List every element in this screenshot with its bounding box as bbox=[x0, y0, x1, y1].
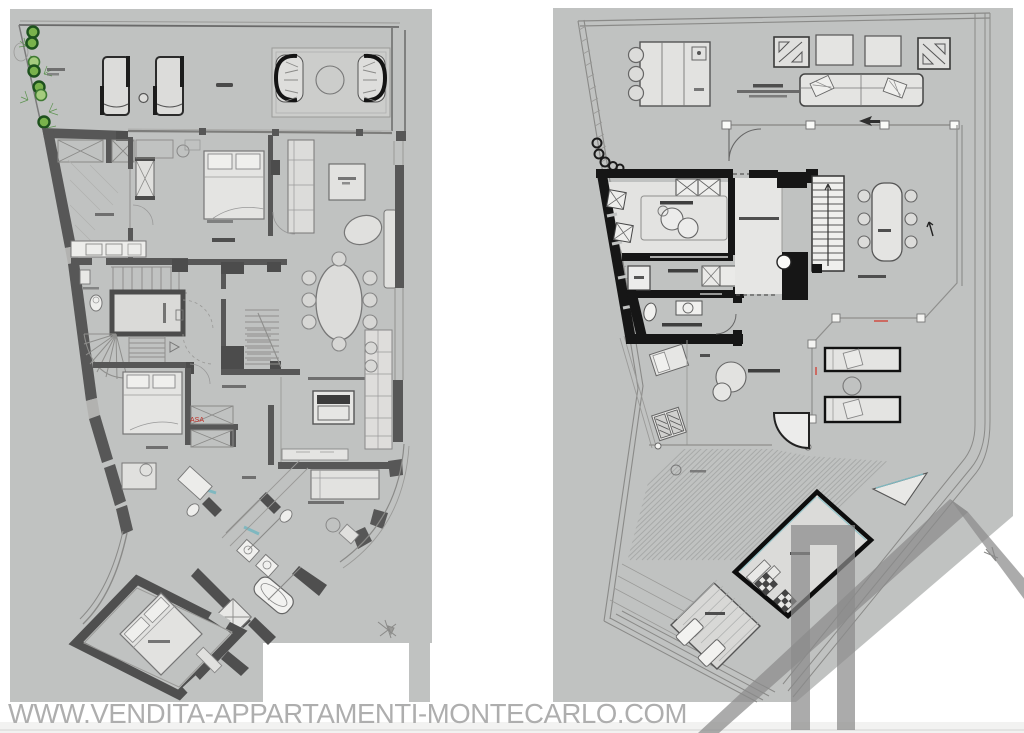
svg-text:ASA: ASA bbox=[190, 417, 204, 424]
svg-text:WWW.VENDITA-APPARTAMENTI-MONTE: WWW.VENDITA-APPARTAMENTI-MONTECARLO.COM bbox=[8, 698, 687, 729]
